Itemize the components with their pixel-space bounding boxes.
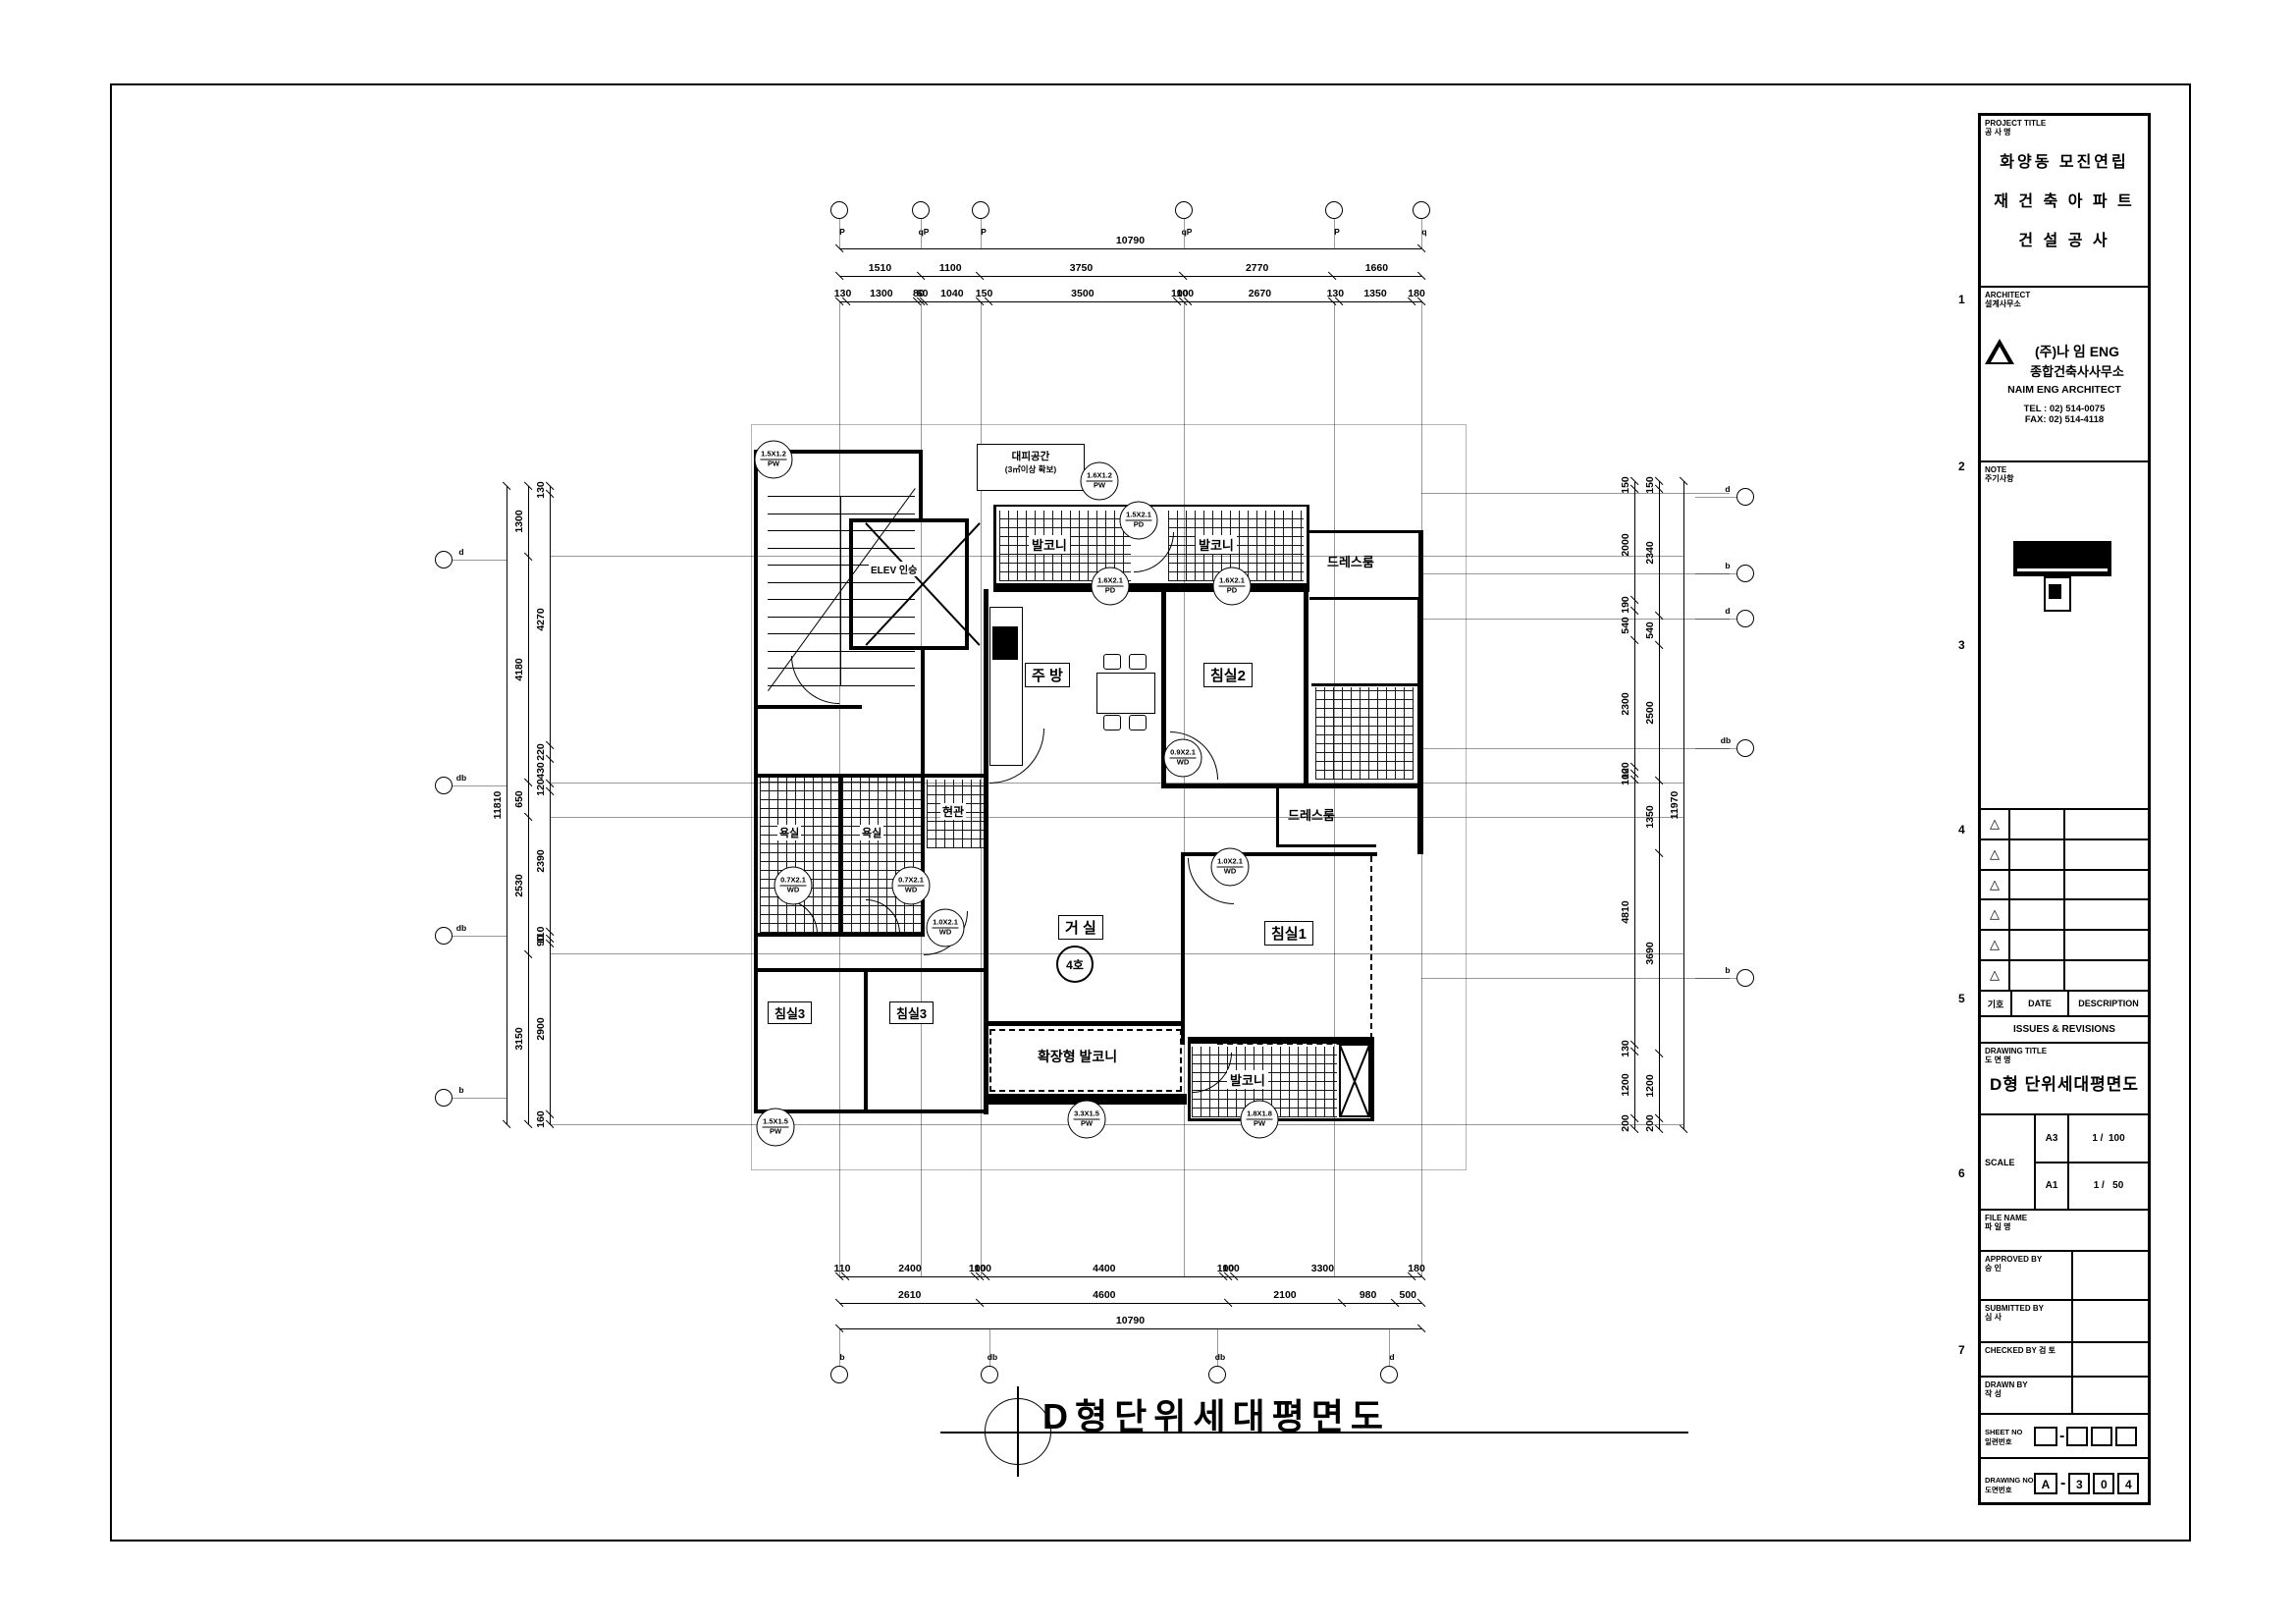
- bubble-stem: [1695, 573, 1737, 574]
- grid-bubble-label: db: [456, 923, 466, 933]
- dim-value: 1350: [1363, 288, 1386, 299]
- chair: [1129, 715, 1147, 730]
- tb-issues: ISSUES & REVISIONS: [1981, 1017, 2148, 1044]
- grid-bubble: [1325, 201, 1343, 219]
- wall: [754, 450, 758, 1113]
- opening-tag: 1.5X2.1PD: [1120, 502, 1158, 540]
- opening-tag: 1.0X2.1WD: [1211, 848, 1250, 887]
- wall: [1370, 1037, 1374, 1121]
- kitchen-label: 주 방: [1025, 663, 1070, 687]
- dim-line: [1659, 481, 1660, 1129]
- revision-row: △: [1981, 808, 2148, 839]
- wall: [864, 972, 868, 1109]
- kitchen-range: [992, 626, 1018, 660]
- grid-bubble: [1736, 969, 1754, 987]
- dress-mid-label: 드레스룸: [1288, 805, 1335, 824]
- dim-value: 650: [513, 791, 525, 809]
- revision-date-cell: [2010, 810, 2065, 839]
- dim-line: [839, 1303, 1421, 1304]
- drawing-no-a: A: [2034, 1473, 2057, 1494]
- wall: [1304, 592, 1308, 788]
- grid-bubble: [1736, 488, 1754, 506]
- checked-value: [2073, 1343, 2148, 1376]
- master-bath-tile: [1315, 687, 1414, 780]
- wall: [1307, 505, 1309, 591]
- dim-value: 2340: [1644, 541, 1656, 564]
- grid-line-h: [550, 783, 1683, 784]
- grid-bubble-label: db: [1215, 1352, 1225, 1362]
- drawing-no-d2: 0: [2093, 1473, 2114, 1494]
- revision-row: △: [1981, 839, 2148, 869]
- opening-tag: 3.3X1.5PW: [1068, 1101, 1106, 1139]
- grid-bubble-label: qP: [919, 227, 930, 237]
- project-line-3: 건 설 공 사: [1981, 227, 2148, 250]
- extension-line: [1370, 856, 1372, 1049]
- grid-bubble: [435, 927, 453, 945]
- dim-value: 2500: [1644, 701, 1656, 724]
- dim-value: 430: [535, 763, 547, 781]
- bedroom2-label: 침실2: [1203, 663, 1253, 687]
- bubble-stem: [1695, 619, 1737, 620]
- elevator-shaft: [849, 518, 969, 650]
- revision-row: △: [1981, 898, 2148, 929]
- tag-code: PD: [1134, 521, 1144, 530]
- tb-approved: APPROVED BY 승 인: [1981, 1252, 2148, 1301]
- bubble-stem: [452, 785, 507, 786]
- dim-value: 3750: [1070, 262, 1093, 274]
- wall: [993, 583, 1309, 592]
- scale-a1-ratio: 1 / 50: [2069, 1163, 2148, 1210]
- grid-bubble-label: db: [988, 1352, 997, 1362]
- dim-value: 3150: [513, 1028, 525, 1051]
- project-line-2: 재 건 축 아 파 트: [1981, 188, 2148, 211]
- grid-bubble-label: b: [839, 1352, 844, 1362]
- tag-code: PD: [1105, 587, 1115, 596]
- bedroom1-label: 침실1: [1264, 921, 1313, 946]
- wall: [984, 589, 988, 1114]
- project-title-label-kr: 공 사 명: [1985, 128, 2011, 136]
- bedroom3b-label: 침실3: [889, 1001, 934, 1024]
- dim-value: 1510: [869, 262, 891, 274]
- chair: [1129, 654, 1147, 670]
- file-name-label: FILE NAME: [1985, 1214, 2027, 1222]
- grid-bubble: [830, 1366, 848, 1383]
- grid-bubble: [1208, 1366, 1226, 1383]
- wall: [1311, 683, 1417, 686]
- dim-value: 220: [535, 743, 547, 761]
- revision-row: △: [1981, 929, 2148, 959]
- dim-value: 1350: [1644, 805, 1656, 828]
- zone-number: 6: [1958, 1166, 1965, 1180]
- grid-bubble-label: q: [1421, 227, 1426, 237]
- note-label: NOTE: [1985, 465, 2006, 474]
- living-label: 거 실: [1058, 915, 1103, 940]
- revision-date-cell: [2010, 931, 2065, 959]
- architect-label-kr: 설계사무소: [1985, 299, 2021, 308]
- dim-value: 3500: [1071, 288, 1094, 299]
- rev-col-date: DATE: [2012, 992, 2069, 1015]
- opening-tag: 1.5X1.2PW: [755, 441, 793, 479]
- dim-value: 2530: [513, 874, 525, 896]
- wall: [1181, 852, 1185, 1045]
- dim-value: 2390: [535, 850, 547, 873]
- approved-label: APPROVED BY: [1985, 1255, 2042, 1264]
- revision-desc-cell: [2065, 810, 2148, 839]
- grid-bubble: [1736, 565, 1754, 582]
- dim-value: 540: [1620, 617, 1631, 634]
- file-name-label-kr: 파 일 명: [1985, 1222, 2011, 1231]
- zone-number: 7: [1958, 1343, 1965, 1357]
- dim-value: 2770: [1246, 262, 1268, 274]
- wall: [1188, 1037, 1191, 1121]
- unit-number-bubble: 4호: [1056, 946, 1094, 983]
- dining-table: [1096, 673, 1155, 714]
- tag-code: PW: [1094, 482, 1105, 491]
- grid-bubble: [435, 777, 453, 794]
- revision-triangle-icon: △: [1981, 931, 2010, 959]
- drawn-value: [2073, 1378, 2148, 1413]
- zone-number: 2: [1958, 460, 1965, 473]
- wall: [1418, 530, 1423, 601]
- tb-drawing-no: DRAWING NO 도면번호 A - 3 0 4: [1981, 1459, 2148, 1508]
- drawing-no-dash: -: [2060, 1475, 2065, 1492]
- zone-number: 3: [1958, 638, 1965, 652]
- architect-fax: FAX: 02) 514-4118: [1981, 414, 2148, 425]
- tb-drawn: DRAWN BY 작 성: [1981, 1378, 2148, 1415]
- grid-bubble-label: b: [458, 1085, 463, 1095]
- approved-label-kr: 승 인: [1985, 1264, 2002, 1272]
- sheet-no-box: [2091, 1427, 2112, 1446]
- dim-value: 2610: [898, 1289, 921, 1301]
- bedroom3a-label: 침실3: [768, 1001, 812, 1024]
- dim-line: [1683, 481, 1684, 1129]
- key-plan: [2013, 541, 2115, 610]
- submitted-label: SUBMITTED BY: [1985, 1304, 2044, 1313]
- grid-bubble: [830, 201, 848, 219]
- zone-number: 1: [1958, 293, 1965, 306]
- bath2-label: 욕실: [860, 825, 883, 840]
- drawing-no-label: DRAWING NO: [1985, 1476, 2034, 1485]
- dim-line: [1634, 481, 1635, 1129]
- revision-row: △: [1981, 869, 2148, 899]
- dim-value: 1300: [513, 510, 525, 532]
- tb-checked: CHECKED BY 검 토: [1981, 1343, 2148, 1378]
- rev-col-desc: DESCRIPTION: [2069, 999, 2148, 1008]
- grid-line-h: [550, 953, 1683, 954]
- grid-bubble-label: d: [1725, 484, 1730, 494]
- dim-value: 4270: [535, 608, 547, 630]
- elevator-label: ELEV 인승: [869, 562, 919, 576]
- wall: [921, 648, 925, 778]
- section-crosshair: [1017, 1386, 1019, 1477]
- grid-line-h: [550, 1124, 1683, 1125]
- revision-date-cell: [2010, 840, 2065, 869]
- drawing-title-label-kr: 도 면 명: [1985, 1055, 2011, 1064]
- grid-bubble-label: P: [839, 227, 845, 237]
- scale-label: SCALE: [1981, 1115, 2036, 1209]
- wall: [1309, 597, 1423, 600]
- grid-bubble-label: b: [1725, 561, 1730, 570]
- architect-name-1: (주)나 임 ENG: [2006, 342, 2148, 361]
- revision-triangle-icon: △: [1981, 900, 2010, 929]
- balcony-top1-label: 발코니: [1029, 535, 1070, 554]
- grid-bubble-label: db: [456, 773, 466, 783]
- wall: [1276, 785, 1279, 846]
- wall: [1309, 530, 1421, 533]
- revision-row: △: [1981, 959, 2148, 990]
- bubble-stem: [1695, 748, 1737, 749]
- revision-triangle-icon: △: [1981, 871, 2010, 899]
- tb-architect: ARCHITECT 설계사무소 (주)나 임 ENG 종합건축사사무소 NAIM…: [1981, 288, 2148, 462]
- tb-sheet-no: SHEET NO 일련번호 -: [1981, 1415, 2148, 1459]
- dim-line: [507, 486, 507, 1124]
- dim-value: 500: [1399, 1289, 1416, 1301]
- dim-value: 2300: [1620, 692, 1631, 715]
- rev-col-symbol: 기호: [1981, 992, 2012, 1015]
- dim-value: 200: [1620, 1115, 1631, 1133]
- dim-value: 3690: [1644, 942, 1656, 964]
- dim-value: 2670: [1249, 288, 1271, 299]
- revision-desc-cell: [2065, 900, 2148, 929]
- dim-value: 10790: [1116, 235, 1145, 246]
- dim-value: 10790: [1116, 1315, 1145, 1326]
- grid-bubble: [1175, 201, 1193, 219]
- scale-a1: A1: [2036, 1163, 2069, 1210]
- bath1-label: 욕실: [777, 825, 801, 840]
- grid-bubble: [1413, 201, 1430, 219]
- wall: [1276, 844, 1376, 847]
- opening-tag: 1.6X1.2PW: [1081, 462, 1119, 501]
- evac-note: 대피공간 (3㎡이상 확보): [977, 444, 1085, 491]
- balcony-top2-label: 발코니: [1196, 535, 1237, 554]
- dim-value: 4810: [1620, 900, 1631, 923]
- wall: [1188, 1118, 1374, 1121]
- grid-bubble-label: P: [981, 227, 987, 237]
- tag-code: PW: [768, 460, 779, 469]
- tb-drawing-title: DRAWING TITLE 도 면 명 D형 단위세대평면도: [1981, 1044, 2148, 1115]
- dim-value: 2000: [1620, 533, 1631, 556]
- grid-line-h: [550, 817, 1683, 818]
- tag-code: WD: [1224, 868, 1237, 877]
- tb-rev-header: 기호 DATE DESCRIPTION: [1981, 990, 2148, 1017]
- dim-value: 540: [1644, 622, 1656, 639]
- bubble-stem: [452, 936, 507, 937]
- drawing-no-d1: 3: [2068, 1473, 2090, 1494]
- bubble-stem: [452, 560, 507, 561]
- drawing-no-d3: 4: [2117, 1473, 2139, 1494]
- tag-code: WD: [1177, 759, 1190, 768]
- revision-triangle-icon: △: [1981, 840, 2010, 869]
- drawing-no-label-kr: 도면번호: [1985, 1486, 2012, 1494]
- dim-value: 90: [535, 936, 547, 947]
- wall: [993, 505, 996, 591]
- checked-label-kr: 검 토: [2039, 1346, 2056, 1355]
- architect-logo-icon: [1985, 339, 2014, 364]
- wall: [756, 968, 988, 972]
- tag-code: PW: [1081, 1120, 1093, 1129]
- grid-bubble-label: d: [1389, 1352, 1394, 1362]
- dim-value: 11970: [1669, 791, 1681, 820]
- dim-value: 4400: [1093, 1263, 1115, 1274]
- tb-scale: SCALE A3 1 / 100 A1 1 / 50: [1981, 1115, 2148, 1211]
- wall: [1161, 784, 1423, 788]
- grid-bubble: [972, 201, 989, 219]
- dim-value: 1200: [1644, 1074, 1656, 1097]
- dim-value: 1040: [940, 288, 963, 299]
- dim-value: 1200: [1620, 1073, 1631, 1096]
- revision-desc-cell: [2065, 871, 2148, 899]
- grid-bubble: [435, 1089, 453, 1107]
- submitted-value: [2073, 1301, 2148, 1341]
- window-wall: [984, 1021, 1185, 1026]
- grid-bubble: [1736, 739, 1754, 757]
- wall: [1188, 1037, 1374, 1044]
- grid-bubble: [1380, 1366, 1398, 1383]
- zone-number: 4: [1958, 823, 1965, 837]
- ext-balcony-label: 확장형 발코니: [1035, 1047, 1120, 1066]
- tag-code: PW: [770, 1128, 781, 1137]
- sheet-no-box: [2066, 1427, 2088, 1446]
- dim-value: 1300: [870, 288, 892, 299]
- grid-bubble-label: d: [1725, 606, 1730, 616]
- revision-date-cell: [2010, 961, 2065, 990]
- sheet-no-box: [2115, 1427, 2137, 1446]
- plan-caption: D형단위세대평면도: [1042, 1388, 1390, 1439]
- grid-bubble-label: b: [1725, 965, 1730, 975]
- tag-code: WD: [787, 887, 800, 895]
- tb-note: NOTE 주기사항: [1981, 462, 2148, 808]
- dim-value: 2900: [535, 1018, 547, 1041]
- grid-bubble: [981, 1366, 998, 1383]
- grid-line-v: [1334, 301, 1335, 1276]
- chair: [1103, 715, 1121, 730]
- wall: [1181, 852, 1377, 856]
- checked-label: CHECKED BY: [1985, 1346, 2037, 1355]
- opening-tag: 1.5X1.5PW: [757, 1109, 795, 1147]
- grid-bubble: [435, 551, 453, 568]
- submitted-label-kr: 심 사: [1985, 1313, 2002, 1322]
- wall: [919, 450, 923, 522]
- revision-triangle-icon: △: [1981, 810, 2010, 839]
- dim-value: 11810: [492, 791, 504, 820]
- opening-tag: 0.9X2.1WD: [1164, 739, 1202, 778]
- x-window: [1339, 1044, 1370, 1117]
- grid-bubble-label: P: [1334, 227, 1340, 237]
- dim-value: 980: [1360, 1289, 1377, 1301]
- dim-value: 4600: [1093, 1289, 1115, 1301]
- drawing-sheet: 1079015101100375027701660130130080601040…: [0, 0, 2296, 1623]
- zone-number: 5: [1958, 992, 1965, 1005]
- bubble-stem: [1695, 978, 1737, 979]
- sheet-no-label: SHEET NO: [1985, 1428, 2022, 1436]
- opening-tag: 0.7X2.1WD: [774, 867, 813, 905]
- dim-value: 3300: [1311, 1263, 1334, 1274]
- dim-line: [550, 486, 551, 1124]
- dim-value: 1100: [939, 262, 962, 274]
- grid-line-v: [1184, 301, 1185, 1276]
- tb-file-name: FILE NAME 파 일 명: [1981, 1211, 2148, 1252]
- tag-code: WD: [905, 887, 918, 895]
- drawing-title: D형 단위세대평면도: [1981, 1070, 2148, 1095]
- evac-line2: (3㎡이상 확보): [978, 463, 1084, 475]
- grid-bubble-label: qP: [1182, 227, 1193, 237]
- dim-value: 2100: [1273, 1289, 1296, 1301]
- opening-tag: 1.0X2.1WD: [927, 909, 965, 947]
- note-label-kr: 주기사항: [1985, 474, 2013, 483]
- opening-tag: 1.8X1.8PW: [1241, 1101, 1279, 1139]
- revision-desc-cell: [2065, 961, 2148, 990]
- tag-code: PD: [1227, 587, 1237, 596]
- scale-a3: A3: [2036, 1115, 2069, 1162]
- unit-number: 4호: [1066, 956, 1084, 973]
- chair: [1103, 654, 1121, 670]
- tb-project: PROJECT TITLE 공 사 명 화양동 모진연립 재 건 축 아 파 트…: [1981, 116, 2148, 288]
- dim-value: 4180: [513, 658, 525, 680]
- dim-line: [839, 1276, 1421, 1277]
- bubble-stem: [1695, 497, 1737, 498]
- wall: [838, 776, 842, 935]
- entrance-label: 현관: [940, 803, 966, 820]
- scale-a3-ratio: 1 / 100: [2069, 1115, 2148, 1162]
- dim-value: 2400: [898, 1263, 921, 1274]
- opening-tag: 0.7X2.1WD: [892, 867, 931, 905]
- dim-value: 1660: [1365, 262, 1388, 274]
- wall: [1417, 597, 1423, 854]
- tb-revisions: △△△△△△: [1981, 808, 2148, 990]
- dim-line: [839, 248, 1421, 249]
- architect-tel: TEL : 02) 514-0075: [1981, 404, 2148, 414]
- sheet-no-box: [2034, 1427, 2057, 1446]
- architect-name-2: 종합건축사사무소: [2006, 361, 2148, 380]
- grid-bubble: [1736, 610, 1754, 627]
- revision-desc-cell: [2065, 840, 2148, 869]
- revision-triangle-icon: △: [1981, 961, 2010, 990]
- dim-line: [839, 1328, 1421, 1329]
- balcony-bottom-label: 발코니: [1227, 1070, 1268, 1089]
- dim-line: [528, 486, 529, 1124]
- tag-code: PW: [1254, 1120, 1265, 1129]
- project-line-1: 화양동 모진연립: [1981, 148, 2148, 172]
- title-block: PROJECT TITLE 공 사 명 화양동 모진연립 재 건 축 아 파 트…: [1978, 113, 2151, 1505]
- dim-value: 200: [1644, 1115, 1656, 1133]
- tag-code: WD: [939, 929, 952, 938]
- evac-line1: 대피공간: [978, 449, 1084, 463]
- grid-bubble: [912, 201, 930, 219]
- revision-date-cell: [2010, 900, 2065, 929]
- drawing-title-label: DRAWING TITLE: [1985, 1047, 2047, 1055]
- dim-value: 190: [1620, 596, 1631, 614]
- dress-top-label: 드레스룸: [1327, 552, 1374, 570]
- drawn-label-kr: 작 성: [1985, 1389, 2002, 1398]
- opening-tag: 1.6X2.1PD: [1092, 568, 1130, 606]
- approved-value: [2073, 1252, 2148, 1299]
- sheet-no-label-kr: 일련번호: [1985, 1437, 2012, 1446]
- bubble-stem: [452, 1098, 507, 1099]
- project-title-label: PROJECT TITLE: [1985, 119, 2046, 128]
- grid-bubble-label: db: [1721, 735, 1731, 745]
- architect-label: ARCHITECT: [1985, 291, 2030, 299]
- tb-submitted: SUBMITTED BY 심 사: [1981, 1301, 2148, 1343]
- revision-date-cell: [2010, 871, 2065, 899]
- wall: [754, 705, 862, 709]
- revision-desc-cell: [2065, 931, 2148, 959]
- grid-bubble-label: d: [458, 547, 463, 557]
- drawn-label: DRAWN BY: [1985, 1380, 2028, 1389]
- architect-name-en: NAIM ENG ARCHITECT: [1981, 384, 2148, 396]
- opening-tag: 1.6X2.1PD: [1213, 568, 1252, 606]
